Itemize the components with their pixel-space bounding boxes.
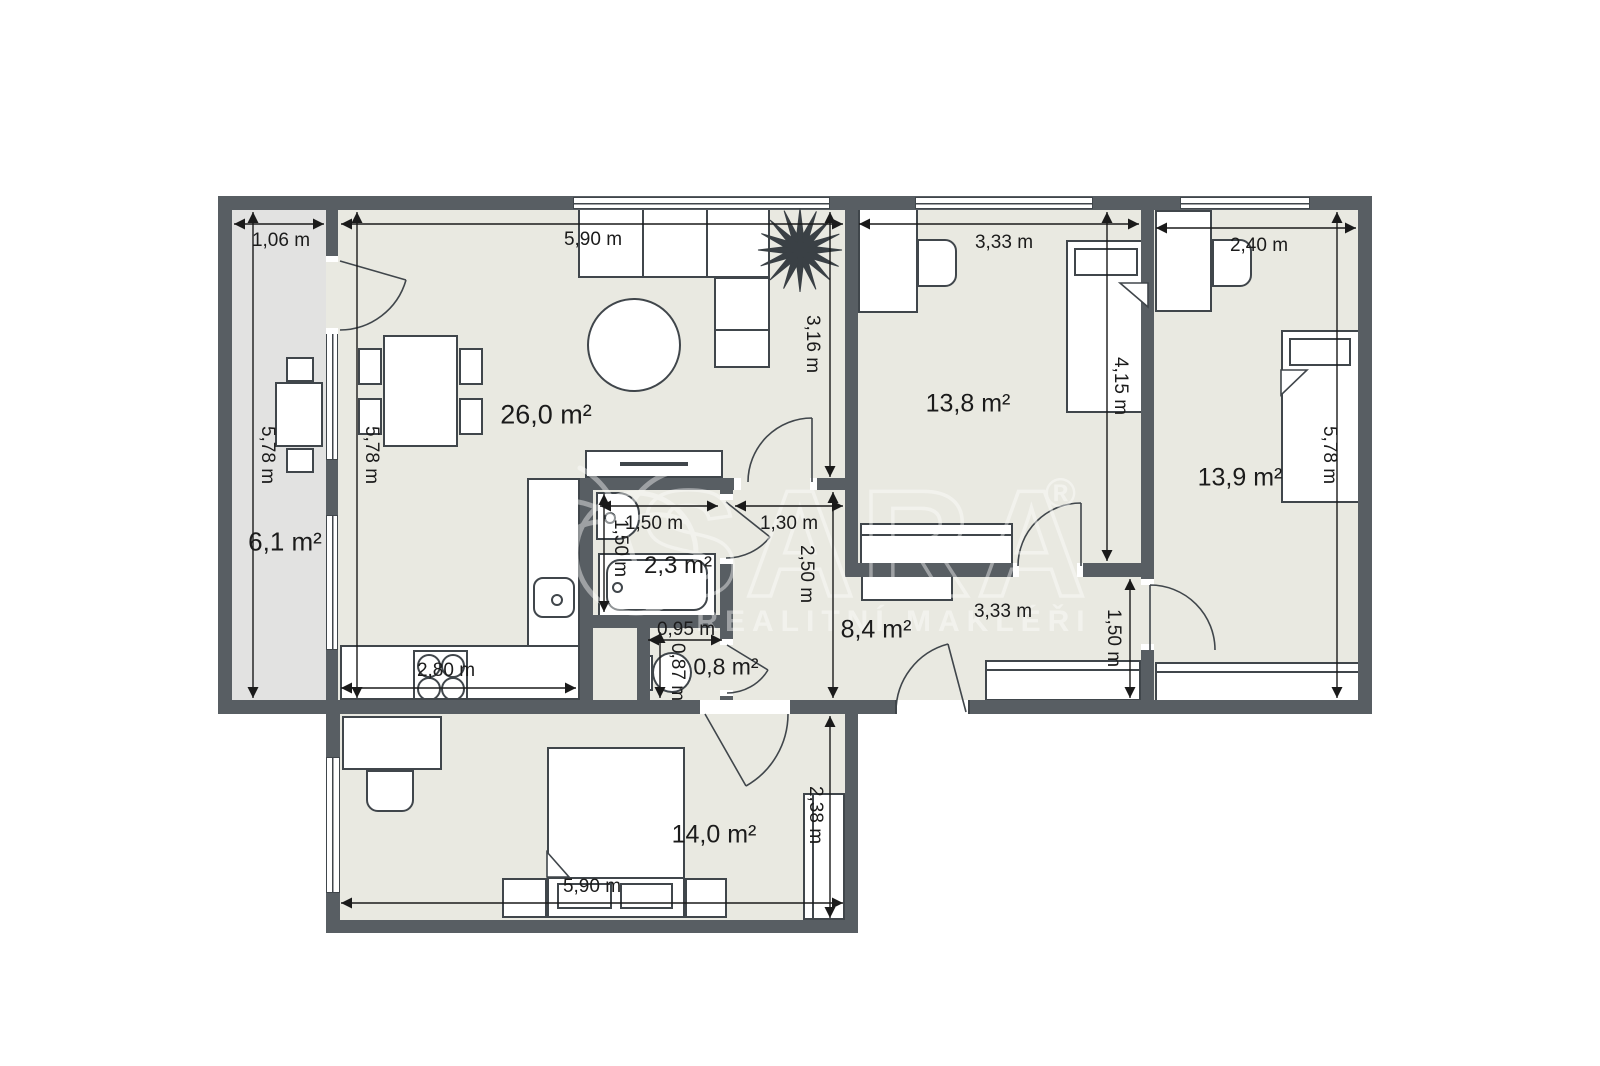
room-label-living: 26,0 m² (500, 400, 592, 431)
dim-label: 3,33 m (975, 232, 1033, 254)
dim-label: 1,30 m (760, 513, 818, 535)
dim-label: 5,78 m (360, 426, 382, 484)
dim-label: 5,90 m (564, 229, 622, 251)
room-label-bedroom2: 13,9 m² (1198, 464, 1283, 493)
dim-label: 2,40 m (1230, 235, 1288, 257)
dim-label: 5,78 m (256, 426, 278, 484)
dim-label: 3,16 m (801, 315, 823, 373)
dim-label: 4,15 m (1109, 357, 1131, 415)
dim-label: 5,78 m (1318, 426, 1340, 484)
dim-label: 2,38 m (804, 786, 826, 844)
room-label-bedroom1: 13,8 m² (926, 390, 1011, 419)
dim-label: 2,50 m (795, 545, 817, 603)
dim-label: 1,06 m (252, 230, 310, 252)
dim-label: 3,33 m (974, 601, 1032, 623)
room-label-wc: 0,8 m² (693, 654, 758, 681)
dim-label: 1,50 m (625, 513, 683, 535)
dim-label: 0,95 m (657, 619, 715, 641)
room-label-hall: 8,4 m² (841, 616, 912, 645)
floor-plan: SARA ® REALITNÍ MAKLÉŘI (0, 0, 1600, 1066)
dim-label: 0,87 m (666, 643, 688, 701)
dim-label: 5,90 m (563, 876, 621, 898)
dim-label: 2,80 m (417, 660, 475, 682)
dim-label: 1,50 m (609, 519, 631, 577)
room-label-bathroom: 2,3 m² (644, 552, 712, 580)
room-label-bedroom-bottom: 14,0 m² (672, 821, 757, 850)
dim-label: 1,50 m (1102, 609, 1124, 667)
room-label-balcony: 6,1 m² (248, 527, 322, 558)
